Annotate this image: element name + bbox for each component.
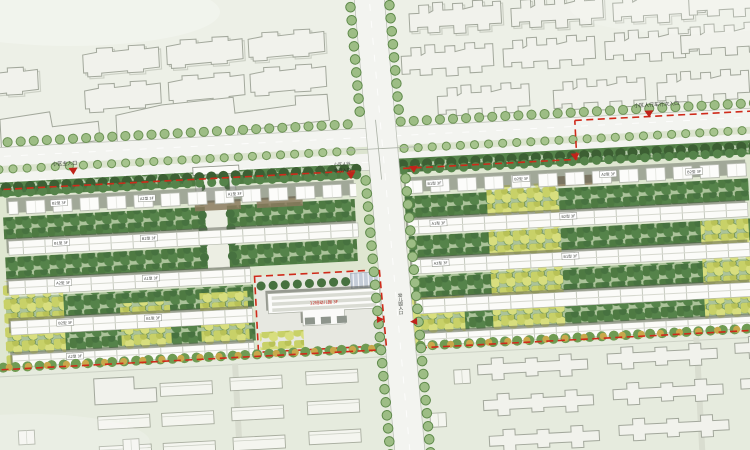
unit-label-chip: B1型 3F	[52, 239, 69, 246]
unit-label-chip: A1型 3F	[142, 274, 159, 281]
svg-text:A1型 3F: A1型 3F	[431, 220, 445, 226]
unit-label-chip: B2型 3F	[140, 234, 157, 241]
unit-label-chip: A2型 3F	[66, 352, 83, 359]
unit-label-chip: A2型 3F	[138, 194, 155, 201]
unit-label-chip: B1型 3F	[562, 252, 579, 259]
svg-text:A2型 3F: A2型 3F	[56, 280, 70, 286]
svg-text:B2型 3F: B2型 3F	[687, 169, 701, 175]
master-plan-image: B2型 3F A2型 3F A1型 3F B1型 3F B2型 3F A2型 3…	[0, 0, 750, 450]
svg-text:A2型 3F: A2型 3F	[68, 353, 82, 359]
yellow-tree-cluster	[700, 218, 750, 324]
unit-label-chip: B2型 3F	[560, 212, 577, 219]
unit-label-chip: A1型 3F	[430, 219, 447, 226]
unit-label-chip: B1型 3F	[426, 179, 443, 186]
unit-label-chip: A2型 3F	[54, 279, 71, 286]
svg-text:A2型 3F: A2型 3F	[434, 260, 448, 266]
plan-rotated-group: B2型 3F A2型 3F A1型 3F B1型 3F B2型 3F A2型 3…	[0, 0, 750, 450]
unit-label-chip: B2型 3F	[50, 199, 67, 206]
svg-text:B2型 3F: B2型 3F	[514, 176, 528, 182]
unit-label-chip: A2型 3F	[432, 259, 449, 266]
svg-text:B1型 3F: B1型 3F	[54, 240, 68, 246]
svg-text:B1型 3F: B1型 3F	[563, 253, 577, 259]
svg-text:B2型 3F: B2型 3F	[142, 235, 156, 241]
entrance-label-main: 小区主入口	[52, 159, 77, 167]
unit-label-chip: A2型 3F	[599, 170, 616, 177]
svg-text:B2型 3F: B2型 3F	[52, 200, 66, 206]
svg-text:A1型 3F: A1型 3F	[144, 275, 158, 281]
svg-text:B2型 3F: B2型 3F	[58, 320, 72, 326]
svg-text:A2型 3F: A2型 3F	[601, 171, 615, 177]
svg-text:B1型 3F: B1型 3F	[427, 180, 441, 186]
site-plan-svg: B2型 3F A2型 3F A1型 3F B1型 3F B2型 3F A2型 3…	[0, 0, 750, 450]
unit-label-chip: A1型 3F	[226, 190, 243, 197]
svg-text:B2型 3F: B2型 3F	[561, 213, 575, 219]
unit-label-chip: B1型 3F	[144, 314, 161, 321]
svg-text:A1型 3F: A1型 3F	[228, 191, 242, 197]
svg-text:A2型 3F: A2型 3F	[140, 195, 154, 201]
unit-label-chip: B2型 3F	[57, 319, 74, 326]
unit-label-chip: B2型 3F	[513, 175, 530, 182]
unit-label-chip: B2型 3F	[685, 168, 702, 175]
svg-text:B1型 3F: B1型 3F	[146, 315, 160, 321]
